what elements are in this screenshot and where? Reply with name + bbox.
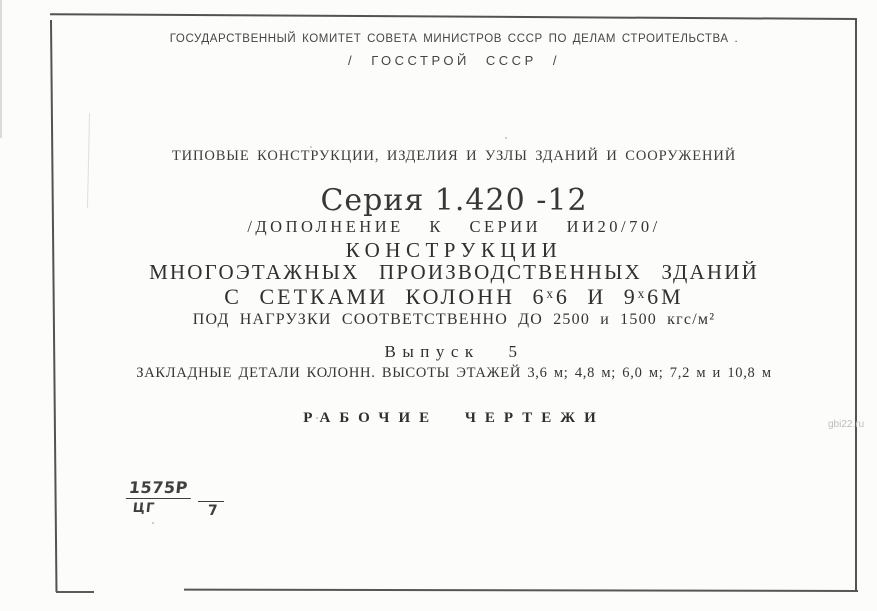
scan-speck	[152, 522, 154, 524]
series-title: Серия 1.420 -12	[52, 183, 856, 218]
org-name: ГОСУДАРСТВЕННЫЙ КОМИТЕТ СОВЕТА МИНИСТРОВ…	[52, 33, 856, 45]
stamp-code: ЦГ	[124, 499, 191, 516]
title-buildings: МНОГОЭТАЖНЫХ ПРОИЗВОДСТВЕННЫХ ЗДАНИЙ	[52, 260, 856, 285]
stamp-sheet-number: 7	[198, 501, 224, 519]
inventory-stamp: 1575Р ЦГ	[124, 478, 193, 516]
title-column-grid: С СЕТКАМИ КОЛОНН 6ˣ6 И 9ˣ6М	[52, 284, 856, 310]
issue-contents: ЗАКЛАДНЫЕ ДЕТАЛИ КОЛОНН. ВЫСОТЫ ЭТАЖЕЙ 3…	[52, 365, 856, 382]
document-page: ГОСУДАРСТВЕННЫЙ КОМИТЕТ СОВЕТА МИНИСТРОВ…	[0, 0, 877, 611]
stamp-number: 1575Р	[126, 478, 193, 499]
watermark: gbi22.ru	[828, 419, 864, 430]
border-bottom-line	[184, 589, 858, 592]
title-loads: ПОД НАГРУЗКИ СООТВЕТСТВЕННО ДО 2500 и 15…	[52, 311, 856, 329]
org-abbrev: / ГОССТРОЙ СССР /	[52, 53, 856, 68]
doc-category: ТИПОВЫЕ КОНСТРУКЦИИ, ИЗДЕЛИЯ И УЗЛЫ ЗДАН…	[52, 148, 856, 165]
doc-type: РАБОЧИЕ ЧЕРТЕЖИ	[52, 410, 856, 427]
scan-edge-artifact	[0, 0, 2, 138]
series-supplement: /ДОПОЛНЕНИЕ К СЕРИИ ИИ20/70/	[52, 217, 856, 237]
scan-speck	[505, 137, 507, 139]
border-bottom-stub-line	[56, 591, 94, 593]
border-top-line	[50, 13, 857, 20]
issue-number: Выпуск 5	[52, 342, 856, 362]
